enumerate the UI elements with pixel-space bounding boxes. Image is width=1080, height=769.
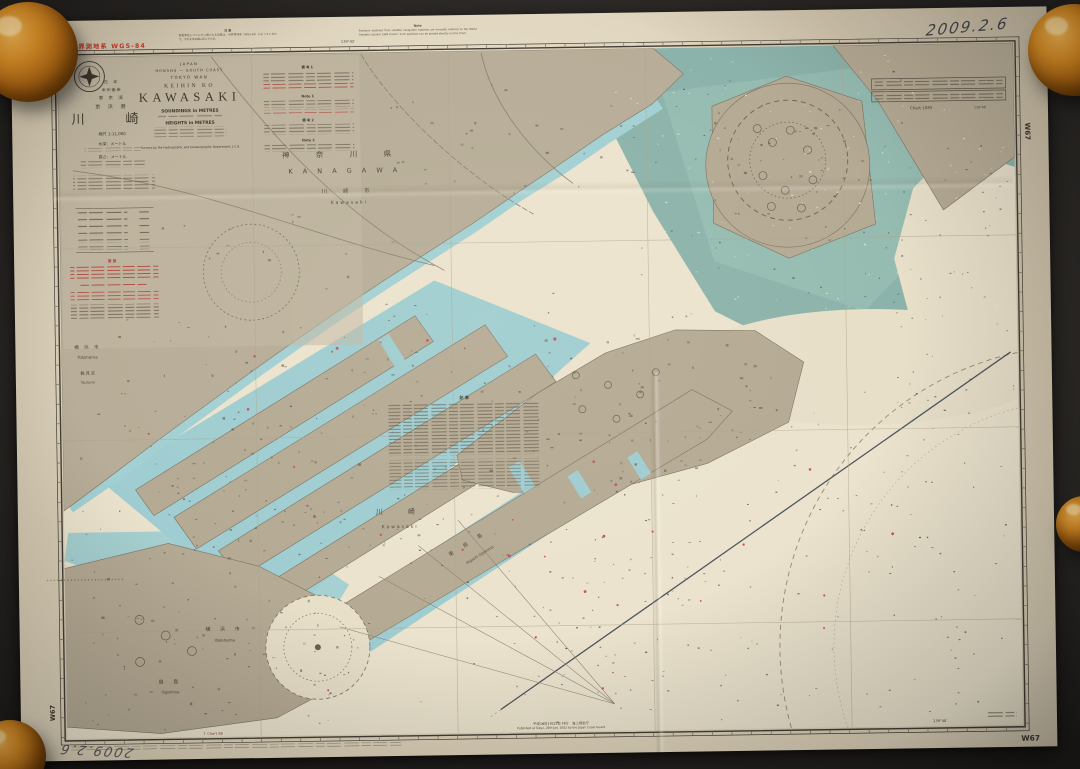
remark1-jp-title: 備 考 1 [301, 64, 313, 69]
tb-title: KAWASAKI [139, 89, 241, 105]
tb-jp-port: 京 浜 港 [95, 103, 128, 110]
tb-heights: HEIGHTS in METRES [165, 120, 214, 127]
chart-number-bottom-right: W67 [1021, 734, 1040, 743]
kawasaki-center-jp: 川 崎 [376, 507, 424, 517]
jcg-seal-icon [74, 61, 104, 91]
tb-jp-coast: 本州南岸 [102, 86, 122, 92]
chart-artwork: 神 奈 川 県 K A N A G A W A 川 崎 市 Kawasaki 川… [11, 6, 1058, 761]
tb-soundings: SOUNDINGS in METRES [161, 108, 219, 115]
tb-jp-title: 川 崎 [71, 112, 152, 128]
adjoining-chart-top: Chart 1085 [910, 105, 933, 110]
city-label-en: Kawasaki [331, 199, 368, 206]
remark2-jp-title: 備 考 2 [302, 117, 314, 122]
wgs-note-en-body: Positions obtained from satellite naviga… [359, 28, 477, 36]
yokohama-bottom-jp: 横 浜 市 [205, 625, 243, 633]
print-correction-note [987, 711, 1017, 718]
wgs-note-en: Note Positions obtained from satellite n… [359, 23, 477, 37]
amber-map-weight-right [1056, 496, 1080, 552]
chart-number-bottom-left: W67 [49, 705, 57, 721]
tb-bay: TOKYO WAN [170, 74, 209, 80]
longitude-bottom: 139°48′ [933, 719, 947, 723]
chart-paper: 神 奈 川 県 K A N A G A W A 川 崎 市 Kawasaki 川… [11, 6, 1058, 761]
geodetic-datum-red: 世界測地系 WGS-84 [71, 42, 146, 51]
tb-country: JAPAN [179, 62, 198, 66]
wgs-note-jp: 注 意 衛星測位システムから得られる位置は、世界測地系（WGS-84）によってい… [179, 28, 277, 41]
chart-number-right: W67 [1023, 123, 1031, 141]
tb-scale: 縮尺 1:11,000 [99, 130, 127, 136]
memo-title: 記 事 [459, 394, 468, 400]
longitude-top: 139°42′ [341, 40, 355, 44]
ogishima-jp: 扇 島 [159, 678, 183, 685]
pref-label-en: K A N A G A W A [288, 166, 401, 176]
lon-top-right: 139°48′ [974, 105, 987, 109]
map-interior: 神 奈 川 県 K A N A G A W A 川 崎 市 Kawasaki 川… [55, 38, 1057, 762]
tb-port: KEIHIN KO [164, 83, 215, 90]
remark1-en-title: Note 1 [301, 94, 314, 98]
tsurumi-jp: 鶴 見 区 [80, 370, 95, 376]
yokohama-left-en: Yokohama [76, 354, 98, 359]
photo-of-nautical-chart: 神 奈 川 県 K A N A G A W A 川 崎 市 Kawasaki 川… [0, 0, 1080, 769]
memo-body [388, 402, 541, 456]
ogishima-en: Ogishima [162, 689, 180, 694]
caution-title: 重 要 [108, 258, 117, 263]
wgs-note-jp-body: 衛星測位システムから得られる位置は、世界測地系（WGS-84）によっているので、… [179, 33, 277, 41]
adjoining-chart-bottom: ↑ Chart 86 [203, 732, 224, 736]
kawasaki-center-en: Kawasaki [382, 524, 419, 531]
tb-jp-heights: 高さ：メートル [99, 153, 127, 159]
tb-jp-country: 日 本 [104, 78, 119, 84]
tb-jp-soundings: 水深：メートル [98, 140, 126, 146]
tsurumi-en: Tsurumi [80, 381, 95, 385]
remark2-en-title: Note 2 [302, 138, 315, 142]
yokohama-bottom-en: Yokohama [214, 637, 236, 642]
